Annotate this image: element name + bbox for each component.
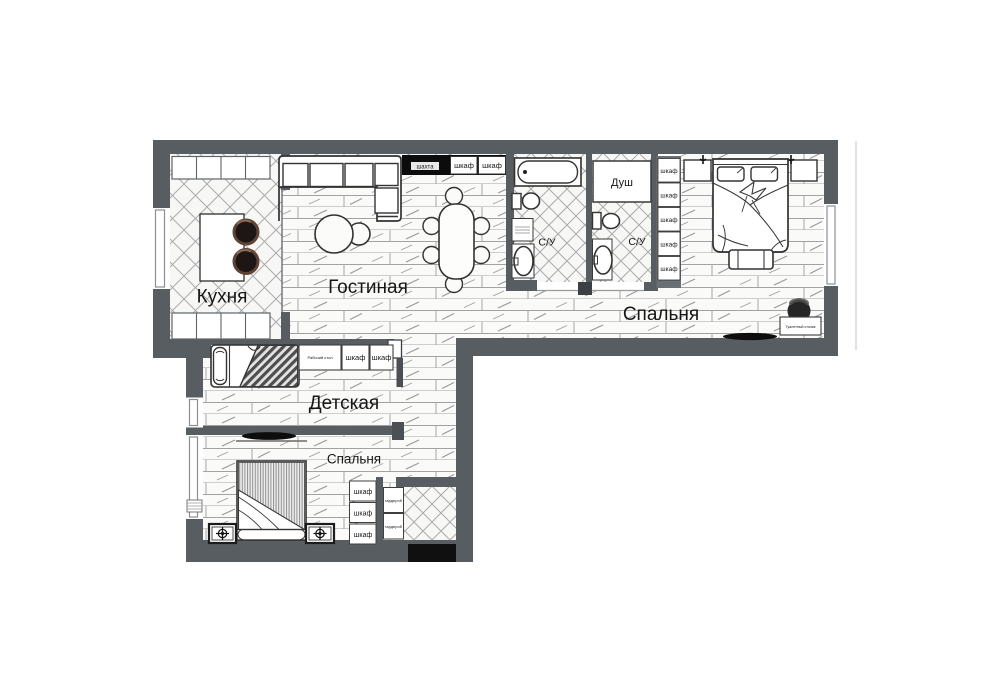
svg-text:гардероб: гардероб [385,524,403,529]
svg-text:шкаф: шкаф [660,217,678,224]
svg-text:шкаф: шкаф [660,266,678,273]
svg-text:шкаф: шкаф [660,168,678,175]
svg-text:гардероб: гардероб [385,498,403,503]
svg-text:Душ: Душ [611,177,633,189]
svg-text:шкаф: шкаф [354,511,373,518]
svg-text:Туалетный столик: Туалетный столик [786,325,816,329]
svg-text:шкаф: шкаф [660,193,678,200]
svg-text:Спальня: Спальня [327,452,381,467]
svg-text:шкаф: шкаф [354,489,373,496]
svg-text:Спальня: Спальня [623,304,699,325]
svg-text:С/У: С/У [628,236,646,248]
svg-text:шкаф: шкаф [372,353,392,362]
svg-text:шкаф: шкаф [346,353,366,362]
svg-text:шахта: шахта [416,164,434,170]
svg-text:шкаф: шкаф [482,161,502,170]
svg-text:Рабочий стол: Рабочий стол [307,355,333,360]
svg-text:Детская: Детская [309,393,379,414]
svg-text:Кухня: Кухня [197,287,248,308]
svg-text:С/У: С/У [538,237,556,249]
svg-text:шкаф: шкаф [660,242,678,249]
svg-text:шкаф: шкаф [454,161,474,170]
svg-text:Гостиная: Гостиная [328,277,408,298]
svg-text:шкаф: шкаф [354,532,373,539]
